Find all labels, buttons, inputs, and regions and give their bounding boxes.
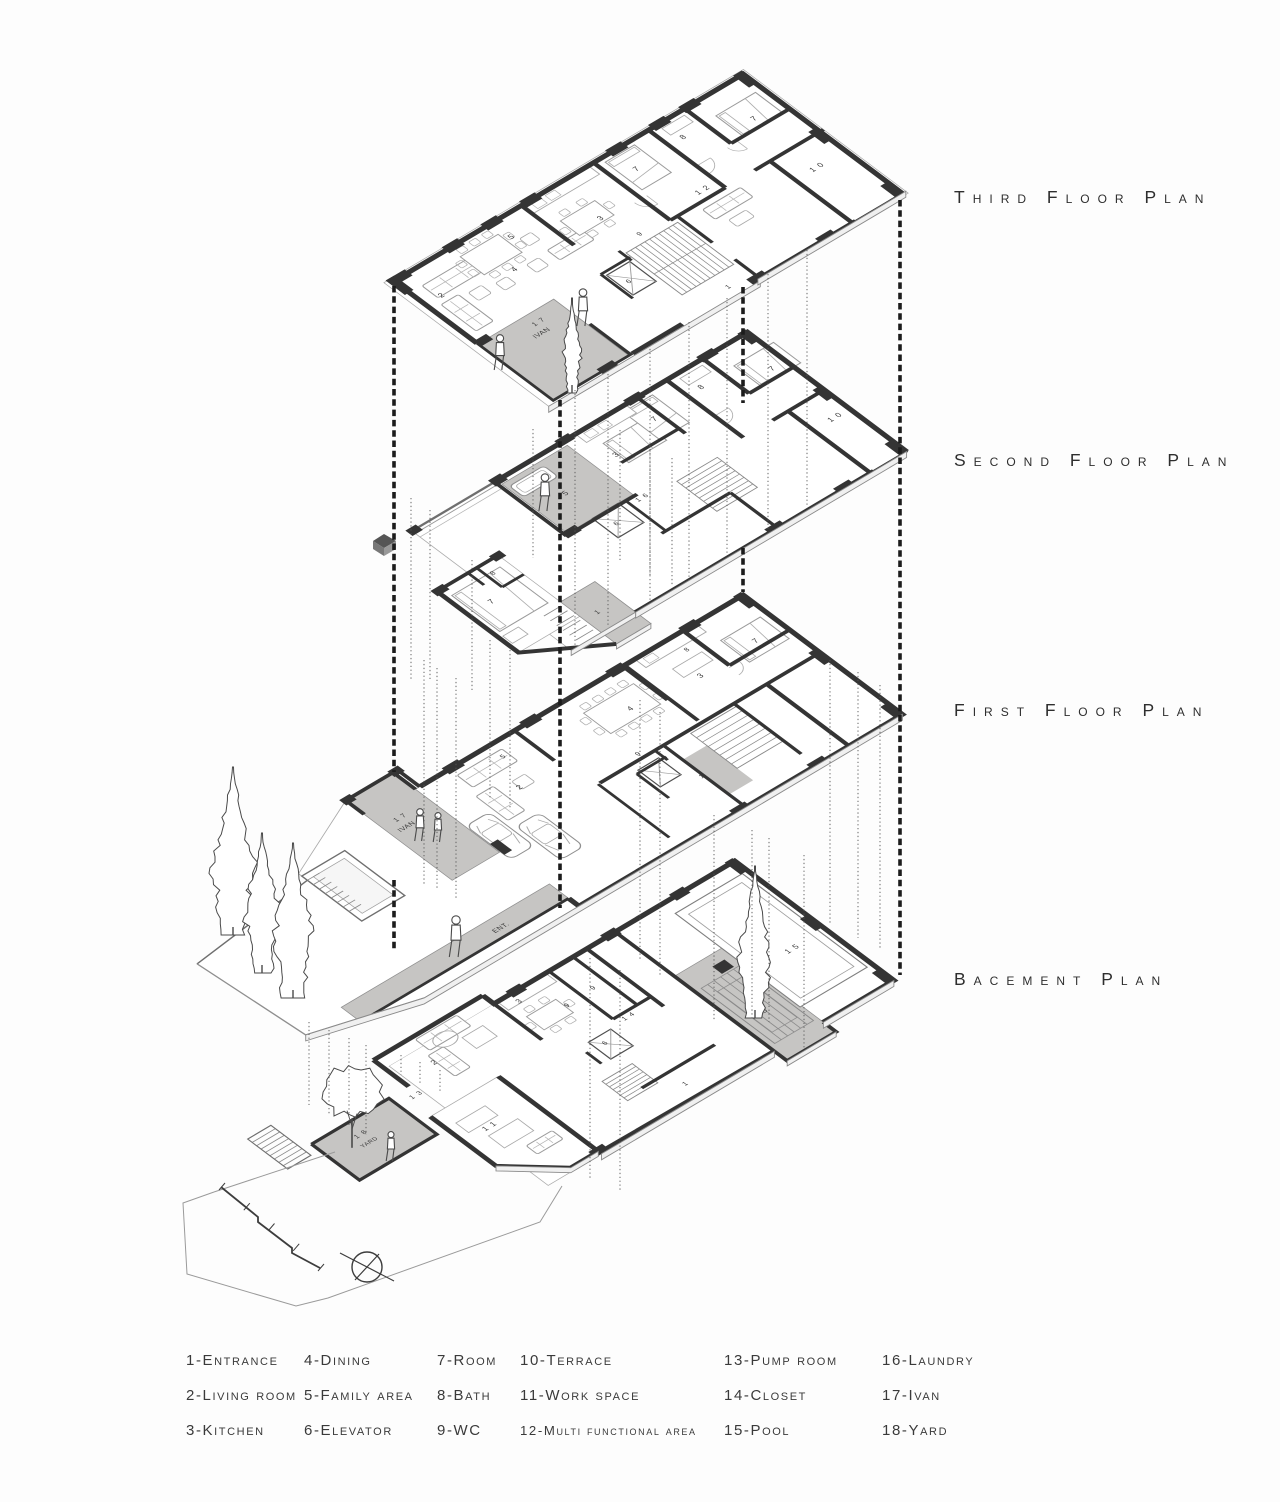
svg-text:2-Living room: 2-Living room [186,1387,297,1404]
svg-text:Second Floor Plan: Second Floor Plan [954,450,1234,470]
svg-text:18-Yard: 18-Yard [882,1422,948,1439]
svg-text:Third Floor Plan: Third Floor Plan [954,187,1211,207]
svg-text:11-Work space: 11-Work space [520,1387,640,1404]
svg-text:First Floor Plan: First Floor Plan [954,700,1209,720]
svg-text:1-Entrance: 1-Entrance [186,1352,279,1369]
svg-text:10-Terrace: 10-Terrace [520,1352,613,1369]
svg-text:7-Room: 7-Room [437,1352,497,1369]
svg-text:3-Kitchen: 3-Kitchen [186,1422,265,1439]
svg-text:9-WC: 9-WC [437,1422,482,1439]
svg-text:17-Ivan: 17-Ivan [882,1387,941,1404]
svg-text:13-Pump room: 13-Pump room [724,1352,838,1369]
svg-text:16-Laundry: 16-Laundry [882,1352,974,1369]
svg-text:8-Bath: 8-Bath [437,1387,491,1404]
svg-text:12-Multi functional area: 12-Multi functional area [520,1423,697,1438]
svg-text:Bacement Plan: Bacement Plan [954,969,1168,989]
svg-text:4-Dining: 4-Dining [304,1352,372,1369]
svg-text:5-Family area: 5-Family area [304,1387,414,1404]
svg-text:15-Pool: 15-Pool [724,1422,790,1439]
svg-text:6-Elevator: 6-Elevator [304,1422,393,1439]
svg-text:14-Closet: 14-Closet [724,1387,807,1404]
